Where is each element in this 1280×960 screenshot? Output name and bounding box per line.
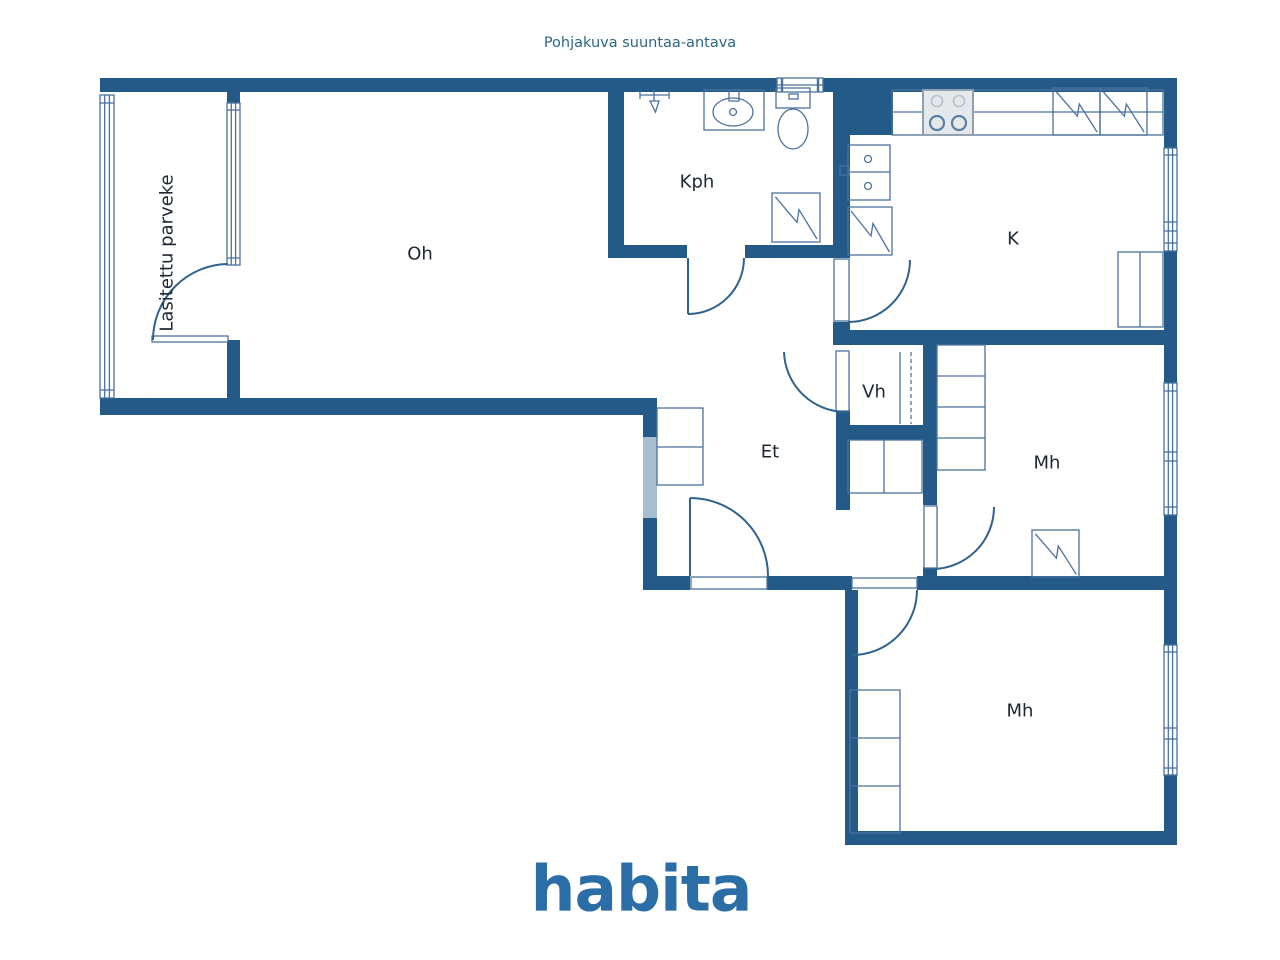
closet-door [784, 351, 849, 412]
bedroom2-window [1164, 645, 1177, 775]
toilet-icon [776, 88, 810, 149]
kitchen-sink-icon [840, 145, 890, 200]
room-label-bedroom1: Mh [1034, 453, 1061, 474]
entry-duct-panel [643, 437, 657, 518]
plan-disclaimer-title: Pohjakuva suuntaa-antava [544, 35, 736, 51]
bedroom1-wardrobe [937, 345, 985, 470]
shower-icon [640, 90, 669, 112]
bathroom-door [688, 258, 744, 314]
floor-plan: Pohjakuva suuntaa-antava Lasitettu parve… [0, 0, 1280, 960]
bedroom1-appliance-icon [1032, 530, 1079, 577]
habita-logo: habita [531, 853, 752, 926]
bedroom1-window [1164, 383, 1177, 515]
kitchen-window [1164, 148, 1177, 251]
balcony-glazing-window [100, 95, 114, 398]
kitchen-door [834, 259, 910, 322]
front-door [690, 498, 768, 589]
stove-icon [923, 90, 973, 135]
closet-sliding-door-icon [900, 352, 911, 424]
dishwasher-icon [848, 207, 892, 255]
room-label-closet: Vh [862, 382, 886, 403]
living-room-balcony-window [227, 103, 240, 265]
room-label-bathroom: Kph [680, 172, 715, 193]
room-label-entry: Et [761, 442, 779, 463]
bedroom2-door [852, 578, 917, 655]
bathroom-vent-window [777, 78, 823, 92]
room-label-balcony: Lasitettu parveke [157, 174, 178, 331]
entry-alcove-cabinet [848, 440, 922, 493]
water-heater-icon [772, 193, 820, 242]
entry-wardrobe [657, 408, 703, 485]
walls [100, 78, 1177, 845]
bedroom1-door [924, 506, 994, 569]
floor-plan-drawing [0, 0, 1280, 960]
room-label-living: Oh [407, 244, 433, 265]
room-label-bedroom2: Mh [1007, 701, 1034, 722]
room-label-kitchen: K [1007, 229, 1019, 250]
kitchen-side-counter [1118, 252, 1163, 327]
sink-icon [704, 90, 764, 130]
